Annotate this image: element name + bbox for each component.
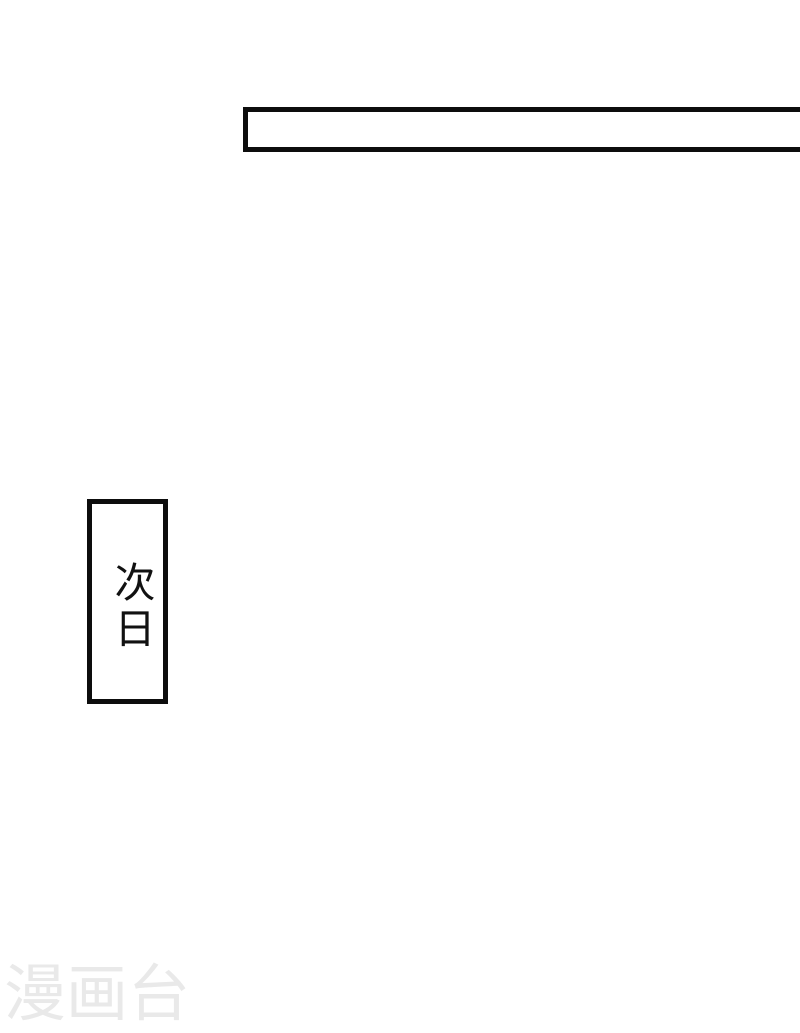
caption-text: 次日 <box>110 561 151 653</box>
comic-page: 次日 漫画台 <box>0 0 800 1033</box>
caption-box-next-day: 次日 <box>87 499 168 704</box>
caption-banner-empty <box>243 107 800 152</box>
watermark-text: 漫画台 <box>4 963 190 1025</box>
